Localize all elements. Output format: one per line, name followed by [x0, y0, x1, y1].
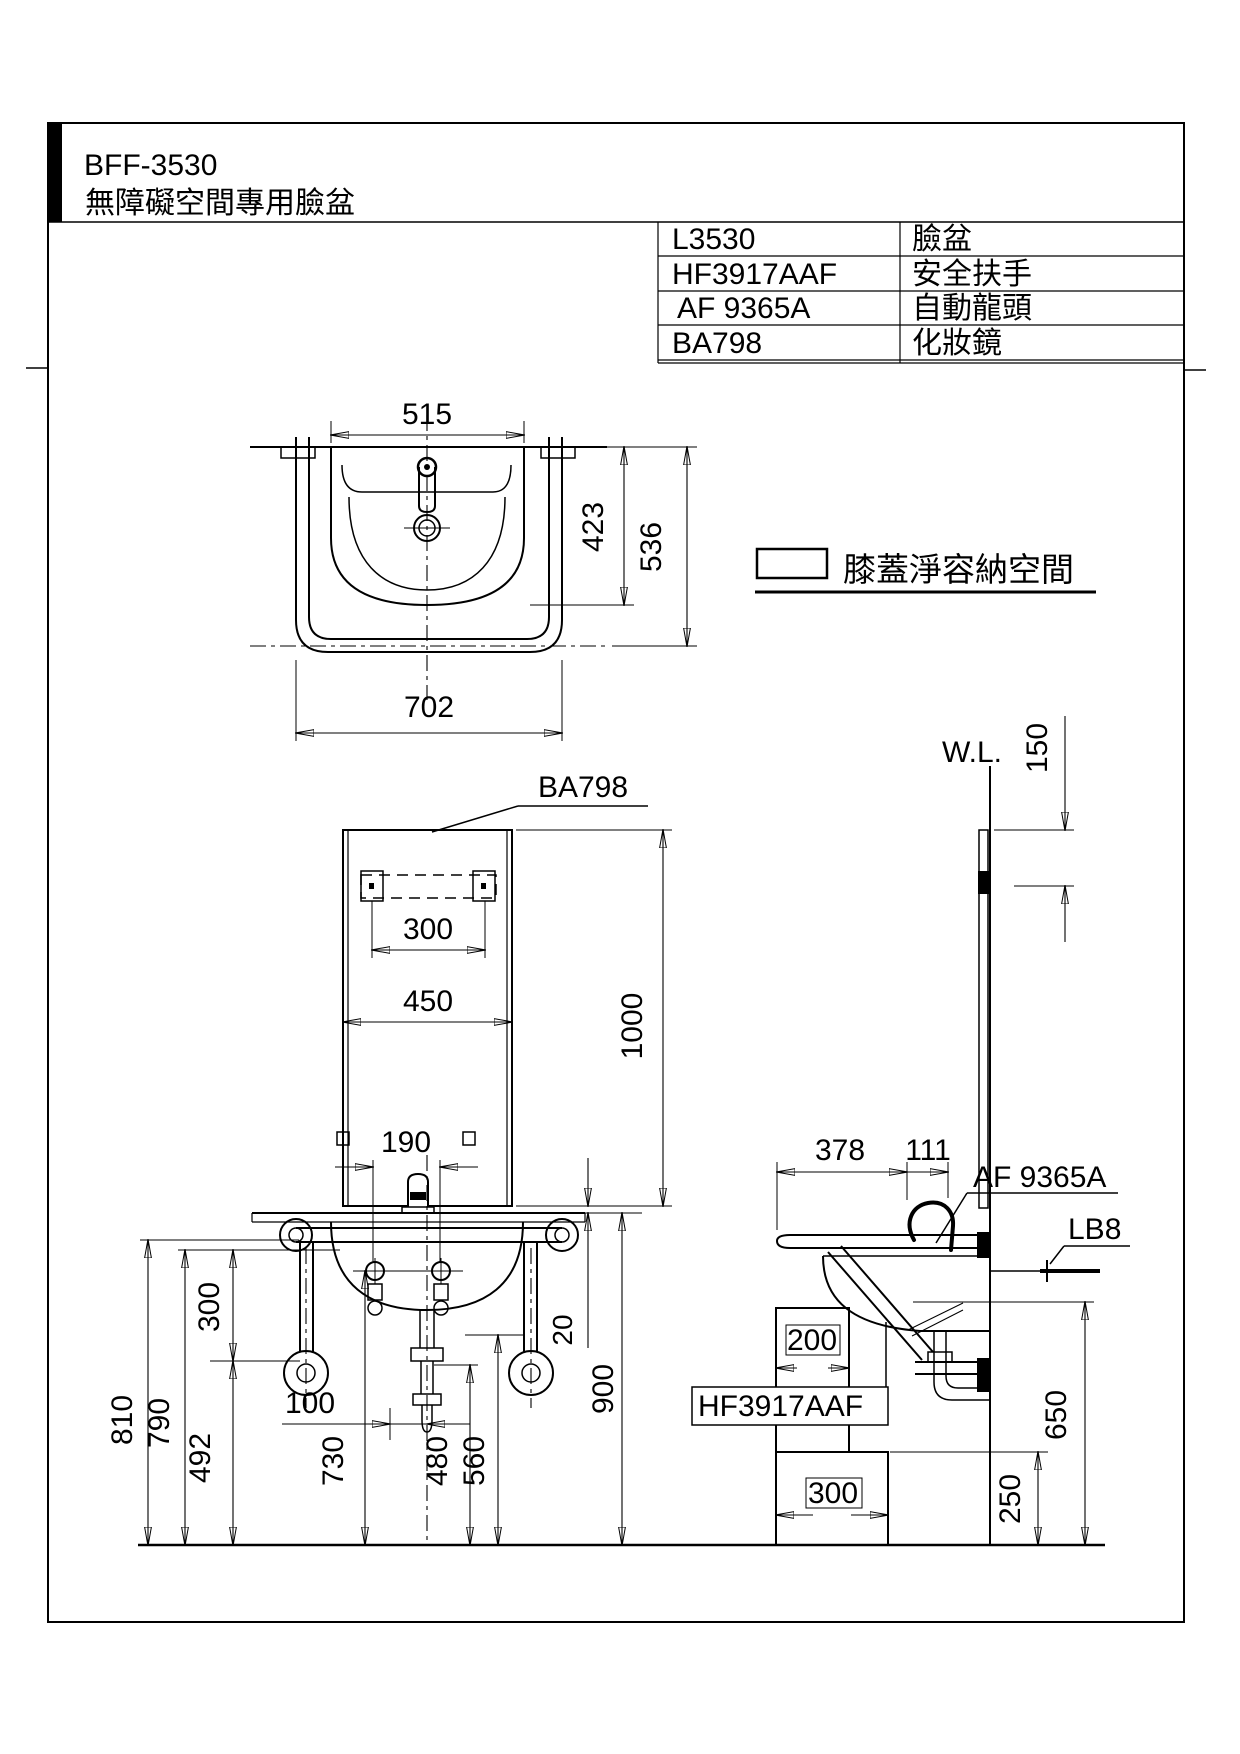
svg-text:560: 560 — [458, 1436, 491, 1486]
svg-text:492: 492 — [184, 1433, 217, 1483]
dim-total-depth: 536 — [612, 447, 697, 646]
technical-drawing: BFF-3530 無障礙空間專用臉盆 L3530 臉盆 HF3917AAF 安全… — [0, 0, 1240, 1754]
dim-drain-offset: 100 — [282, 1387, 470, 1440]
spec-sheet: BFF-3530 無障礙空間專用臉盆 L3530 臉盆 HF3917AAF 安全… — [0, 0, 1240, 1754]
svg-text:702: 702 — [404, 691, 454, 724]
svg-text:300: 300 — [403, 913, 453, 946]
dim-knee-lower-depth: 300 — [776, 1477, 888, 1515]
svg-text:810: 810 — [106, 1395, 139, 1445]
header: BFF-3530 無障礙空間專用臉盆 — [84, 149, 355, 220]
mirror-hanger-bracket — [361, 871, 496, 901]
svg-text:1000: 1000 — [616, 993, 649, 1060]
top-view: 515 423 536 702 — [250, 398, 697, 741]
mirror-clip — [463, 1132, 475, 1145]
svg-text:AF 9365A: AF 9365A — [973, 1161, 1106, 1194]
svg-text:423: 423 — [577, 502, 610, 552]
dim-flange-height: 492 — [184, 1361, 233, 1545]
part-code: BA798 — [672, 327, 762, 360]
svg-text:300: 300 — [193, 1282, 226, 1332]
svg-text:111: 111 — [905, 1134, 951, 1167]
svg-text:650: 650 — [1040, 1390, 1073, 1440]
dim-total-width: 702 — [296, 660, 562, 741]
header-black-bar — [48, 123, 62, 222]
parts-table: L3530 臉盆 HF3917AAF 安全扶手 AF 9365A 自動龍頭 BA… — [658, 222, 1184, 363]
side-view: W.L. 150 — [692, 716, 1130, 1545]
svg-text:378: 378 — [815, 1134, 865, 1167]
part-name: 安全扶手 — [912, 258, 1032, 291]
mirror-label: BA798 — [432, 771, 648, 832]
dim-mirror-gap: 20 — [547, 1158, 642, 1348]
wall-bolt — [990, 1260, 1100, 1282]
mount-pad — [541, 447, 575, 458]
svg-text:20: 20 — [547, 1314, 578, 1345]
supply-stops — [353, 1258, 463, 1315]
svg-text:BA798: BA798 — [538, 771, 628, 804]
svg-text:515: 515 — [402, 398, 452, 431]
dim-outlet-height: 560 — [458, 1335, 523, 1545]
grab-bar-front — [280, 1219, 578, 1408]
svg-text:790: 790 — [143, 1398, 176, 1448]
grab-bar-outer — [296, 437, 562, 652]
dim-flange-offset: 300 — [193, 1250, 300, 1361]
dim-spout-offset: 111 — [905, 1134, 951, 1172]
svg-text:450: 450 — [403, 985, 453, 1018]
dim-mirror-height: 1000 — [516, 830, 672, 1206]
svg-text:900: 900 — [587, 1364, 620, 1414]
svg-text:HF3917AAF: HF3917AAF — [698, 1390, 863, 1423]
part-code: L3530 — [672, 223, 755, 256]
dim-mirror-width: 450 — [343, 985, 512, 1022]
part-code: AF 9365A — [677, 292, 810, 325]
part-name: 自動龍頭 — [912, 292, 1032, 325]
svg-text:480: 480 — [421, 1436, 454, 1486]
svg-text:200: 200 — [787, 1324, 837, 1357]
dim-deck-height: 900 — [587, 1213, 622, 1545]
front-view: BA798 300 450 1000 — [106, 771, 672, 1545]
svg-text:190: 190 — [381, 1126, 431, 1159]
knee-space-legend: 膝蓋淨容納空間 — [755, 549, 1096, 592]
svg-text:250: 250 — [994, 1474, 1027, 1524]
hatch-swatch-icon — [757, 549, 827, 578]
svg-text:300: 300 — [808, 1477, 858, 1510]
dim-basin-depth: 423 — [530, 447, 634, 605]
svg-text:LB8: LB8 — [1068, 1213, 1121, 1246]
dim-bracket-width: 300 — [372, 901, 485, 958]
bolt-label: LB8 — [1050, 1213, 1130, 1264]
svg-text:150: 150 — [1021, 723, 1054, 773]
subtitle: 無障礙空間專用臉盆 — [85, 187, 355, 220]
svg-text:730: 730 — [317, 1436, 350, 1486]
wall-line-label: W.L. — [942, 736, 1002, 769]
dim-knee-lower-height: 250 — [890, 1452, 1048, 1545]
svg-text:100: 100 — [285, 1387, 335, 1420]
svg-text:536: 536 — [635, 522, 668, 572]
faucet-front — [402, 1174, 434, 1213]
legend-label: 膝蓋淨容納空間 — [843, 551, 1074, 588]
dim-knee-upper-depth: 200 — [776, 1324, 849, 1368]
part-name: 臉盆 — [912, 223, 972, 256]
model-title: BFF-3530 — [84, 149, 217, 182]
part-code: HF3917AAF — [672, 258, 837, 291]
dim-mirror-top-offset: 150 — [994, 716, 1074, 942]
part-name: 化妝鏡 — [912, 327, 1002, 360]
mirror-bracket-side — [978, 871, 989, 894]
